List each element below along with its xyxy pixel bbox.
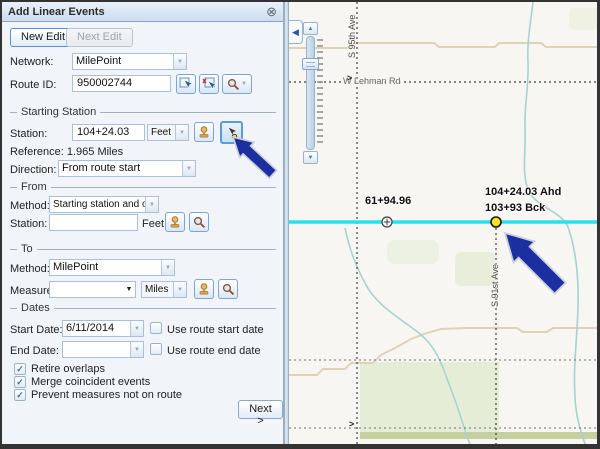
stamp-icon (197, 125, 211, 139)
station-unit-value: Feet (148, 125, 175, 140)
from-locate-button[interactable] (165, 212, 185, 232)
network-select[interactable]: MilePoint ▼ (72, 53, 187, 70)
stamp-icon (168, 215, 182, 229)
zoom-in-button[interactable]: ▲ (303, 22, 318, 35)
station-locate-button[interactable] (194, 122, 214, 142)
chevron-down-icon[interactable]: ▼ (161, 260, 174, 275)
end-date-picker[interactable]: ▼ (62, 341, 144, 358)
from-search-button[interactable] (189, 212, 209, 232)
reference-station-marker[interactable] (382, 217, 392, 227)
station-input[interactable]: 104+24.03 (72, 124, 145, 141)
select-route-on-map-button[interactable] (176, 74, 196, 94)
clear-cursor-icon (202, 77, 216, 91)
zoom-slider-track[interactable] (306, 36, 315, 150)
from-method-label: Method: (10, 200, 50, 212)
zoom-ticks (317, 40, 323, 142)
chevron-down-icon[interactable]: ▼ (130, 342, 143, 357)
search-icon (193, 216, 206, 229)
chevron-down-icon[interactable]: ▼ (130, 321, 143, 336)
retire-overlaps-label: Retire overlaps (31, 363, 105, 375)
callout-arrow-map-marker (494, 222, 570, 298)
search-icon (222, 283, 235, 296)
merge-coincident-checkbox[interactable]: ✓ (14, 376, 26, 388)
from-station-label: Station: (10, 218, 47, 230)
station-label-left: 61+94.96 (365, 195, 411, 207)
section-label: Starting Station (21, 106, 96, 118)
use-route-end-date-label: Use route end date (167, 345, 261, 357)
panel-title: Add Linear Events (8, 6, 105, 18)
measure-value (50, 282, 123, 297)
direction-value: From route start (59, 161, 182, 176)
map-canvas (289, 2, 597, 444)
chevron-down-icon: ▼ (241, 81, 247, 87)
search-icon (227, 78, 240, 91)
map-cursor-icon (179, 77, 193, 91)
station-label-ahead: 104+24.03 Ahd (485, 186, 561, 198)
to-method-label: Method: (10, 263, 50, 275)
to-search-button[interactable] (218, 279, 238, 299)
station-unit-select[interactable]: Feet ▼ (147, 124, 189, 141)
use-route-start-date-checkbox[interactable] (150, 322, 162, 334)
chevron-down-icon[interactable]: ▼ (173, 54, 186, 69)
tan-roads (289, 43, 597, 375)
section-label: To (21, 243, 33, 255)
section-from: From (10, 181, 276, 193)
station-label: Station: (10, 128, 47, 140)
pick-point-cursor-icon (225, 126, 239, 140)
chevron-down-icon[interactable]: ▼ (173, 282, 186, 297)
measure-unit-select[interactable]: Miles ▼ (141, 281, 187, 298)
prevent-measures-label: Prevent measures not on route (31, 389, 182, 401)
selected-station-marker[interactable] (491, 217, 501, 227)
road-direction-arrow: > (349, 419, 354, 429)
use-route-start-date-label: Use route start date (167, 324, 264, 336)
start-date-label: Start Date: (10, 324, 63, 336)
pick-station-on-map-button[interactable] (220, 121, 243, 144)
direction-select[interactable]: From route start ▼ (58, 160, 196, 177)
network-label: Network: (10, 56, 53, 68)
clear-route-selection-button[interactable] (199, 74, 219, 94)
direction-label: Direction: (10, 164, 56, 176)
route-id-input[interactable]: 950002744 (72, 75, 171, 92)
from-station-input[interactable] (49, 214, 138, 231)
chevron-down-icon[interactable]: ▼ (123, 282, 135, 297)
zoom-out-arrow-icon: ▼ (308, 155, 314, 161)
chevron-down-icon[interactable]: ▼ (182, 161, 195, 176)
add-linear-events-panel: Add Linear Events ⊗ New Edit Next Edit N… (2, 2, 284, 444)
from-method-select[interactable]: Starting station and offset ▼ (49, 196, 159, 213)
section-to: To (10, 243, 276, 255)
next-button[interactable]: Next > (238, 400, 283, 419)
end-date-label: End Date: (10, 345, 59, 357)
road-direction-arrow: > (347, 73, 352, 83)
app-window: Add Linear Events ⊗ New Edit Next Edit N… (0, 0, 600, 449)
start-date-picker[interactable]: 6/11/2014 ▼ (62, 320, 144, 337)
section-starting-station: Starting Station (10, 106, 276, 118)
reference-text: Reference: 1.965 Miles (10, 146, 123, 158)
section-dates: Dates (10, 302, 276, 314)
station-label-back: 103+93 Bck (485, 202, 545, 214)
section-label: Dates (21, 302, 50, 314)
network-value: MilePoint (73, 54, 173, 69)
route-id-label: Route ID: (10, 79, 56, 91)
prevent-measures-checkbox[interactable]: ✓ (14, 389, 26, 401)
collapse-panel-button[interactable]: ◀ (289, 20, 303, 44)
measure-unit-value: Miles (142, 282, 173, 297)
from-method-value: Starting station and offset (50, 197, 145, 212)
from-station-unit: Feet (142, 218, 164, 230)
route-search-menu-button[interactable]: ▼ (222, 74, 252, 94)
panel-header: Add Linear Events ⊗ (2, 2, 283, 22)
to-method-value: MilePoint (50, 260, 161, 275)
road-label-s-91st-ave: S 91st Ave (490, 264, 500, 307)
section-label: From (21, 181, 47, 193)
use-route-end-date-checkbox[interactable] (150, 343, 162, 355)
chevron-down-icon[interactable]: ▼ (145, 197, 158, 212)
map-view[interactable]: S 95th Ave W Lehman Rd S 91st Ave > > 61… (289, 2, 597, 444)
merge-coincident-label: Merge coincident events (31, 376, 150, 388)
zoom-out-button[interactable]: ▼ (303, 151, 318, 164)
start-date-value: 6/11/2014 (63, 321, 130, 336)
close-icon[interactable]: ⊗ (266, 5, 277, 18)
to-locate-button[interactable] (194, 279, 214, 299)
zoom-slider-handle[interactable] (302, 58, 319, 70)
next-edit-button[interactable]: Next Edit (66, 28, 133, 47)
chevron-down-icon[interactable]: ▼ (175, 125, 188, 140)
collapse-arrow-icon: ◀ (292, 27, 299, 38)
to-method-select[interactable]: MilePoint ▼ (49, 259, 175, 276)
stamp-icon (197, 282, 211, 296)
measure-combo[interactable]: ▼ (49, 281, 136, 298)
road-label-s-95th-ave: S 95th Ave (347, 15, 357, 58)
retire-overlaps-checkbox[interactable]: ✓ (14, 363, 26, 375)
end-date-value (63, 342, 130, 357)
zoom-in-arrow-icon: ▲ (308, 26, 314, 32)
